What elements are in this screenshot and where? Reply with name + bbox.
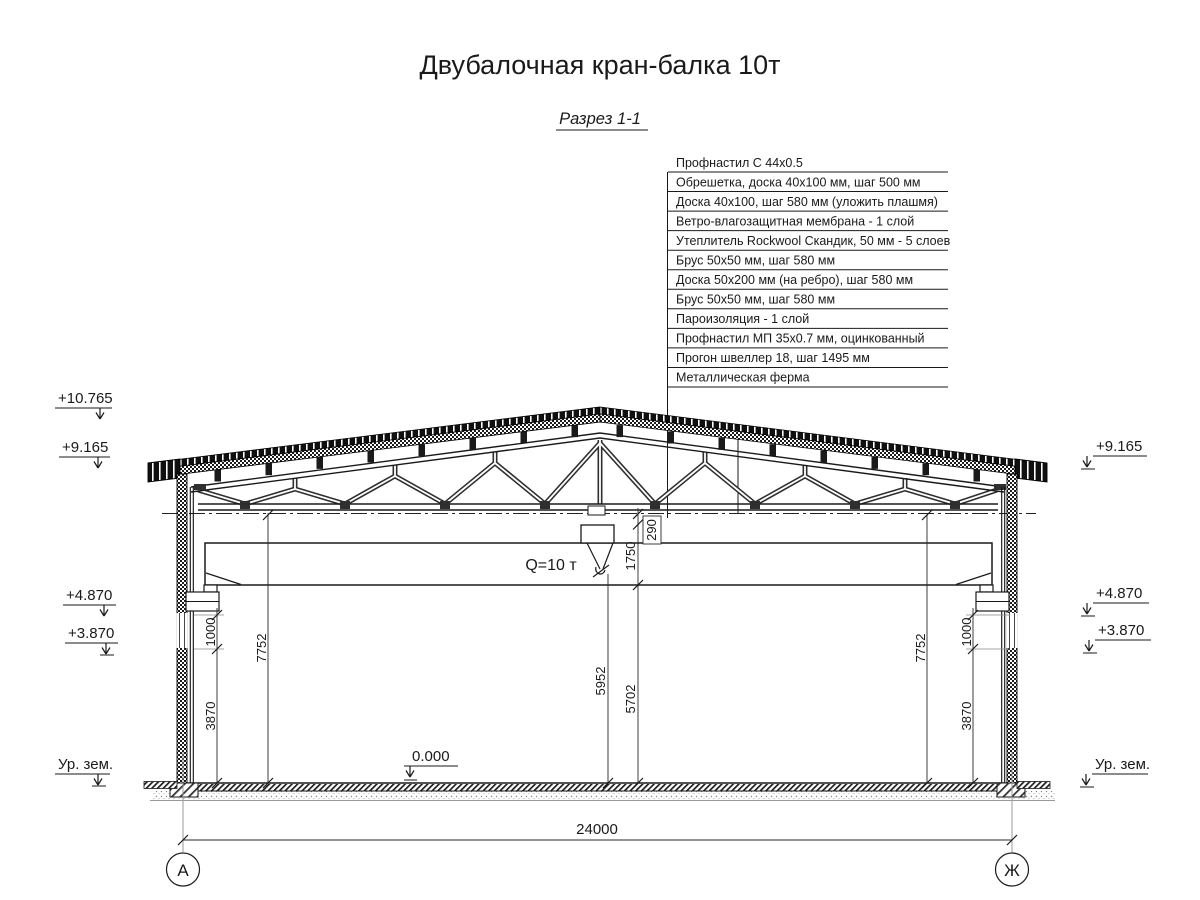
- elevation-girt-right-label: +3.870: [1098, 622, 1144, 639]
- section-drawing: Двубалочная кран-балка 10т Разрез 1-1 Пр…: [0, 0, 1200, 900]
- roof-sheeting-right: [600, 407, 1037, 469]
- elevation-ground-left-label: Ур. зем.: [58, 756, 113, 773]
- roof-layer-label: Доска 50х200 мм (на ребро), шаг 580 мм: [676, 273, 913, 287]
- roof-layer-label: Брус 50х50 мм, шаг 580 мм: [676, 293, 835, 307]
- elevation-ridge-label: +10.765: [58, 390, 113, 407]
- crane-wheel-right: [980, 585, 993, 592]
- axis-label-left: А: [177, 861, 189, 880]
- roof-layer-label: Брус 50х50 мм, шаг 580 мм: [676, 254, 835, 268]
- roof-layer-label: Профнастил С 44х0.5: [676, 156, 803, 170]
- dim-7752-left: 7752: [254, 634, 269, 663]
- floor: [144, 782, 1055, 801]
- hoist-trolley: [581, 525, 614, 543]
- crane-assembly: Q=10 т: [186, 525, 1009, 611]
- blind-area-right: [1017, 782, 1050, 789]
- dim-1000-right: 1000: [959, 618, 974, 647]
- elevation-eave-left-label: +9.165: [62, 439, 108, 456]
- roof-layer-label: Ветро-влагозащитная мембрана - 1 слой: [676, 215, 914, 229]
- dim-1750: 1750: [623, 542, 638, 571]
- dim-290: 290: [644, 519, 659, 541]
- roof-sheeting-left: [158, 407, 600, 469]
- wall-joint-left: [177, 613, 188, 648]
- crane-girder: [205, 543, 992, 585]
- chord-splice-plate: [588, 506, 605, 515]
- fascia-left: [148, 459, 180, 482]
- roof-layer-label: Обрешетка, доска 40х100 мм, шаг 500 мм: [676, 176, 921, 190]
- elevation-floor-zero-label: 0.000: [412, 748, 450, 765]
- roof-layer-label: Пароизоляция - 1 слой: [676, 312, 809, 326]
- fascia-right: [1015, 459, 1047, 482]
- extension-lines: [194, 615, 1010, 649]
- roof-layer-label: Профнастил МП 35х0.7 мм, оцинкованный: [676, 332, 925, 346]
- elevation-girt-left-label: +3.870: [68, 625, 114, 642]
- elevation-corbel-left-label: +4.870: [66, 587, 112, 604]
- dim-3870-left: 3870: [203, 702, 218, 731]
- dim-7752-right: 7752: [913, 634, 928, 663]
- roof-layer-label: Утеплитель Rockwool Скандик, 50 мм - 5 с…: [676, 234, 951, 248]
- dim-5952: 5952: [593, 667, 608, 696]
- dim-3870-right: 3870: [959, 702, 974, 731]
- walls: [177, 474, 1018, 783]
- crane-wheel-left: [204, 585, 217, 592]
- blind-area-left: [144, 782, 177, 789]
- roof-layer-label: Металлическая ферма: [676, 371, 810, 385]
- dim-span-label: 24000: [576, 821, 618, 838]
- dim-5702: 5702: [623, 685, 638, 714]
- elevation-ground-right-label: Ур. зем.: [1095, 756, 1150, 773]
- drawing-page: Двубалочная кран-балка 10т Разрез 1-1 Пр…: [0, 0, 1200, 900]
- floor-bedding: [152, 791, 1055, 800]
- wall-joint-right: [1007, 613, 1018, 648]
- floor-slab: [187, 784, 1007, 791]
- span-dimension: 24000 А Ж: [167, 752, 1029, 886]
- crane-capacity-label: Q=10 т: [525, 557, 577, 574]
- section-label: Разрез 1-1: [559, 110, 641, 128]
- roof-layer-label: Прогон швеллер 18, шаг 1495 мм: [676, 351, 870, 365]
- elevation-corbel-right-label: +4.870: [1096, 585, 1142, 602]
- elevation-eave-right-label: +9.165: [1096, 438, 1142, 455]
- dim-1000-left: 1000: [203, 618, 218, 647]
- roof-layer-label: Доска 40х100, шаг 580 мм (уложить плашмя…: [676, 195, 938, 209]
- axis-label-right: Ж: [1004, 861, 1020, 880]
- page-title: Двубалочная кран-балка 10т: [420, 50, 781, 80]
- roof-layer-callout-table: Профнастил С 44х0.5 Обрешетка, доска 40х…: [668, 156, 951, 518]
